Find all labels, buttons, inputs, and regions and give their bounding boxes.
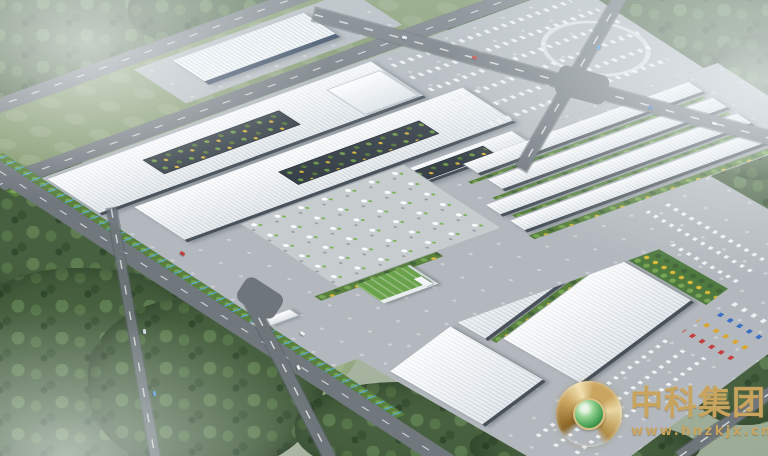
vehicle bbox=[143, 329, 147, 334]
visitor-center-tower bbox=[414, 276, 433, 286]
vehicle bbox=[153, 391, 157, 396]
aerial-industrial-park-rendering: 中科集团 www.hnzkjx.cn bbox=[0, 0, 768, 456]
